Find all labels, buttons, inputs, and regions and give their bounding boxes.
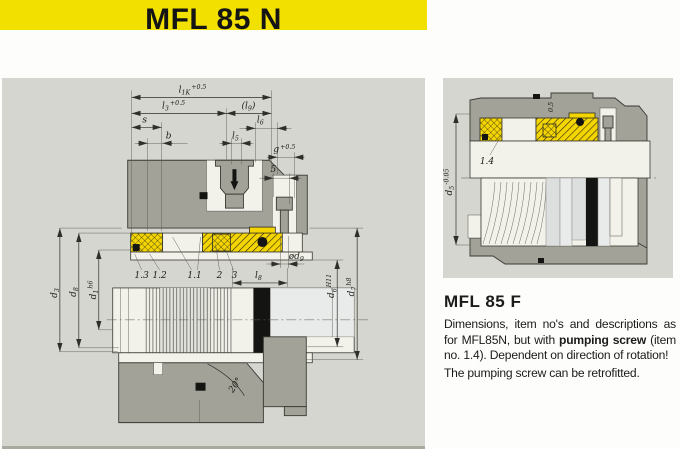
item-label-1-4: 1.4: [480, 157, 495, 167]
dim-label-d3: d3: [50, 288, 61, 298]
dim-label-l8: l8: [255, 271, 262, 282]
bellows: [163, 233, 203, 252]
item-label-1-3: 1.3: [135, 271, 150, 281]
dim-label-0-5: 0.5: [547, 102, 555, 112]
right-technical-drawing: d5-0.05 0.5 1.4: [443, 78, 673, 278]
shaft-sleeve: [470, 141, 650, 178]
dim-label-l6: l6: [257, 115, 264, 126]
dim-label-l5: l5: [232, 131, 239, 142]
dim-label-g: g+0.5: [273, 144, 295, 155]
set-screw: [603, 116, 613, 128]
dim-label-s: s: [142, 115, 147, 125]
pumping-screw-shaft: [481, 178, 638, 246]
page-title: MFL 85 N: [0, 3, 427, 37]
dim-label-d8: d8: [69, 287, 80, 297]
dim-label-b: b: [166, 131, 172, 141]
o-ring: [576, 118, 584, 126]
dim-label-d6: d6H11: [326, 274, 338, 298]
bellows: [502, 118, 536, 141]
item-label-1-2: 1.2: [152, 271, 167, 281]
item-label-2: 2: [216, 271, 223, 281]
item-label-3: 3: [232, 271, 238, 281]
left-technical-drawing: l1K+0.5 l3+0.5 (l9) s l6 b l5 g+0.5 5 d3…: [2, 78, 425, 446]
info-block: MFL 85 F Dimensions, item no's and descr…: [444, 292, 676, 382]
dim-label-l1k: l1K+0.5: [179, 84, 207, 96]
right-drawing-panel: d5-0.05 0.5 1.4: [443, 78, 673, 278]
set-screw: [276, 197, 292, 210]
info-line2: The pumping screw can be retrofitted.: [444, 366, 676, 382]
dim-label-d5: d5-0.05: [444, 169, 457, 196]
info-text-bold: pumping screw: [559, 333, 646, 347]
item-label-1-1: 1.1: [187, 271, 201, 281]
gland-housing: [128, 160, 308, 236]
info-paragraph: Dimensions, item no's and descriptions a…: [444, 317, 676, 364]
dim-label-d7: d7h8: [346, 278, 358, 297]
info-heading: MFL 85 F: [444, 292, 676, 312]
o-ring: [257, 237, 267, 247]
left-drawing-panel: l1K+0.5 l3+0.5 (l9) s l6 b l5 g+0.5 5 d3…: [2, 78, 425, 449]
dim-label-d1: d1h6: [87, 281, 99, 300]
shaft-sleeve: [131, 252, 313, 260]
dim-label-5: 5: [270, 165, 276, 175]
dim-label-l3: l3+0.5: [162, 100, 185, 112]
dim-label-l9: (l9): [241, 100, 255, 112]
